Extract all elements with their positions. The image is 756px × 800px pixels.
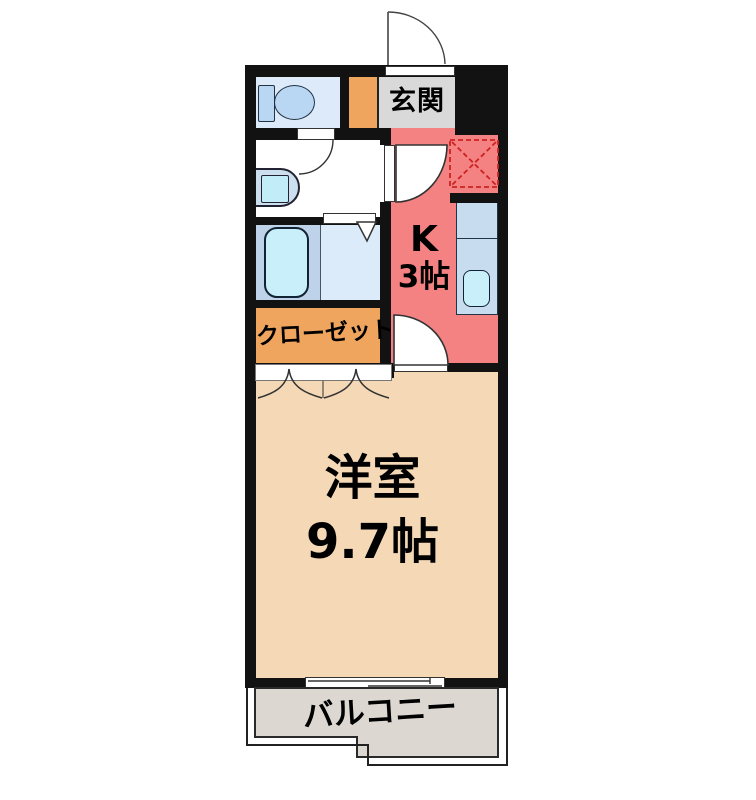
wall-above-counter	[450, 193, 498, 203]
western-room-name: 洋室	[255, 453, 490, 503]
toilet-bowl-icon	[274, 85, 315, 120]
kitchen-sink-icon	[463, 270, 490, 307]
floorplan: 玄関 K 3帖 クローゼット 洋室 9.7帖 バルコニー	[0, 0, 756, 800]
balcony-window-sill	[305, 677, 445, 689]
bathroom-door-side	[320, 225, 381, 303]
wall-bath-bottom	[245, 300, 380, 308]
washbasin-bowl-icon	[261, 175, 289, 203]
bath-door-sill	[323, 213, 376, 224]
balcony-label: バルコニー	[254, 688, 506, 736]
kitchen-door-sill	[394, 363, 448, 372]
entrance-door-arc-icon	[388, 12, 445, 64]
wall-right	[498, 65, 508, 688]
washroom-door-leaf	[384, 145, 395, 202]
entrance-door-sill	[385, 66, 455, 76]
entrance-label: 玄関	[379, 88, 455, 116]
western-room-label: 洋室 9.7帖	[255, 453, 490, 568]
wall-mid-vertical-lower	[380, 202, 391, 372]
western-room-size: 9.7帖	[255, 517, 490, 567]
kitchen-label: K 3帖	[391, 221, 457, 293]
kitchen-label-size: 3帖	[391, 261, 457, 294]
wall-top-right-block	[455, 65, 508, 135]
toilet-icon	[258, 85, 275, 122]
closet-door-track	[255, 364, 392, 381]
kitchen-counter-divider	[456, 238, 498, 239]
wall-mid-vertical-upper	[380, 128, 391, 145]
bathtub-icon	[264, 227, 309, 298]
toilet-door-sill	[297, 128, 335, 140]
wall-kitchen-bottom	[448, 363, 508, 372]
kitchen-label-k: K	[391, 221, 457, 259]
shoe-cabinet	[349, 76, 379, 128]
